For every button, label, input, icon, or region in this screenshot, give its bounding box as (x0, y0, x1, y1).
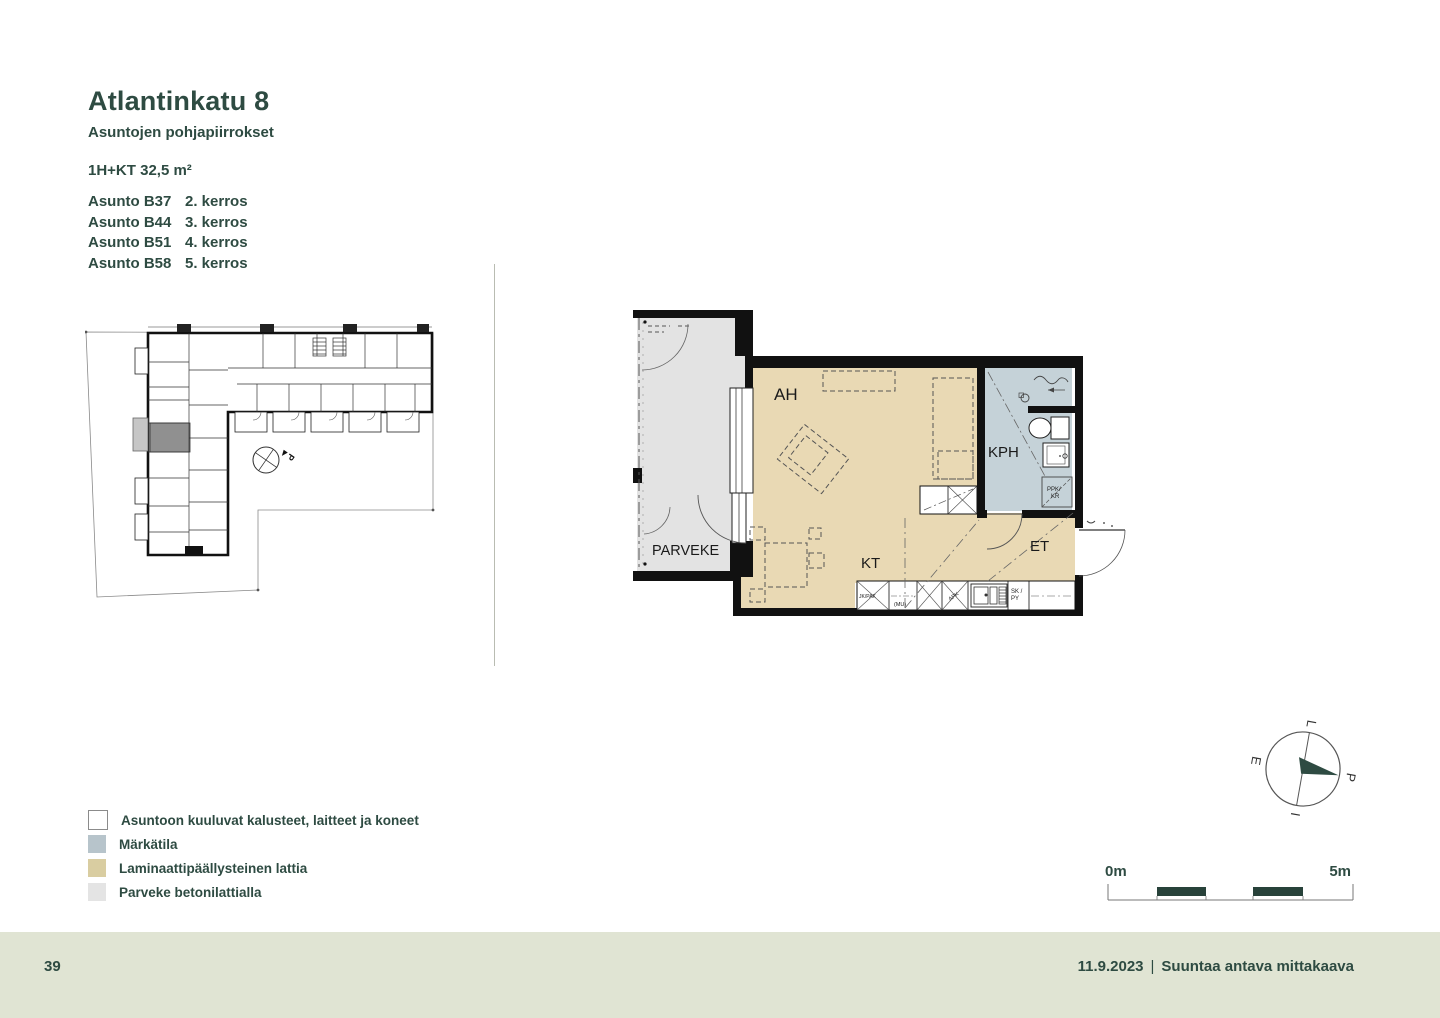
service-block (185, 546, 203, 555)
living-room-label: AH (774, 385, 798, 404)
bathroom-label: KPH (988, 444, 1019, 461)
page-title: Atlantinkatu 8 (88, 86, 274, 117)
balcony-floor (637, 318, 745, 571)
apartment-list: Asunto B37 2. kerros Asunto B44 3. kerro… (88, 192, 274, 274)
footer-bar: 39 11.9.2023|Suuntaa antava mittakaava (0, 932, 1440, 1018)
mu-label: (MU) (894, 602, 906, 608)
balcony-label: PARVEKE (652, 543, 719, 559)
svg-text:PY: PY (1011, 596, 1019, 602)
legend-row: Parveke betonilattialla (88, 880, 419, 904)
living-room-window (730, 388, 753, 493)
compass-south-label: E (1248, 755, 1264, 766)
legend-row: Märkätila (88, 832, 419, 856)
legend-row: Laminaattipäällysteinen lattia (88, 856, 419, 880)
compass-east-label: I (1288, 811, 1303, 817)
footer-separator: | (1144, 958, 1162, 975)
apartment-name: Asunto B44 (88, 213, 185, 234)
compass-north-label: P (1343, 772, 1358, 783)
fridge-label: JK/PAK (859, 594, 877, 600)
apartment-floor: 4. kerros (185, 233, 248, 254)
entrance-door (1079, 521, 1125, 576)
legend: Asuntoon kuuluvat kalusteet, laitteet ja… (88, 808, 419, 904)
legend-row: Asuntoon kuuluvat kalusteet, laitteet ja… (88, 808, 419, 832)
sink-icon (1043, 443, 1069, 467)
kitchen-label: KT (861, 555, 880, 572)
compass-icon: P I E L (1248, 712, 1358, 822)
legend-swatch-laminate (88, 859, 106, 877)
footer-date: 11.9.2023 (1078, 958, 1144, 975)
apartment-row: Asunto B58 5. kerros (88, 254, 274, 275)
site-marker-icon (253, 447, 279, 473)
kitchen-sink-icon (971, 584, 1007, 607)
scale-bar: 0m 5m (1093, 860, 1363, 906)
apartment-floor: 3. kerros (185, 213, 248, 234)
svg-text:P: P (285, 452, 297, 463)
apartment-row: Asunto B44 3. kerros (88, 213, 274, 234)
top-balcony-ticks (177, 324, 429, 332)
apartment-row: Asunto B51 4. kerros (88, 233, 274, 254)
cleaning-cabinet-label: SK / (1011, 589, 1023, 595)
scale-start-label: 0m (1105, 863, 1127, 880)
site-overview-plan: P (85, 310, 445, 605)
apartment-name: Asunto B51 (88, 233, 185, 254)
highlighted-unit (150, 423, 190, 452)
page-number: 39 (44, 958, 61, 975)
apartment-row: Asunto B37 2. kerros (88, 192, 274, 213)
building-outline (148, 333, 432, 555)
svg-text:KR: KR (1051, 494, 1060, 500)
svg-text:PPK/: PPK/ (1047, 487, 1061, 493)
footer-note: 11.9.2023|Suuntaa antava mittakaava (1078, 958, 1354, 975)
entry-label: ET (1030, 538, 1049, 555)
kitchen-island (920, 486, 977, 514)
apartment-name: Asunto B37 (88, 192, 185, 213)
footer-scale-note: Suuntaa antava mittakaava (1161, 958, 1354, 975)
apartment-name: Asunto B58 (88, 254, 185, 275)
header: Atlantinkatu 8 Asuntojen pohjapiirrokset… (88, 86, 274, 274)
site-north-marker: P (280, 449, 296, 463)
compass-west-label: L (1303, 719, 1319, 729)
page-subtitle: Asuntojen pohjapiirrokset (88, 124, 274, 141)
legend-swatch-wet-room (88, 835, 106, 853)
floor-plan-page: { "header": { "title": "Atlantinkatu 8",… (0, 0, 1440, 1018)
courtyard-balconies (235, 412, 419, 432)
scale-end-label: 5m (1329, 863, 1351, 880)
unit-type-label: 1H+KT 32,5 m² (88, 162, 274, 179)
kitchen-counter: JK/PAK (MU) APK SK / PY (857, 581, 1075, 610)
apartment-floor-plan: PPK/ KR JK/PAK (MU) APK (628, 296, 1138, 626)
apartment-floor: 2. kerros (185, 192, 248, 213)
vertical-divider (494, 264, 495, 666)
apartment-floor: 5. kerros (185, 254, 248, 275)
highlighted-unit-balcony (133, 418, 148, 451)
legend-swatch-furniture (88, 810, 108, 830)
legend-swatch-balcony (88, 883, 106, 901)
